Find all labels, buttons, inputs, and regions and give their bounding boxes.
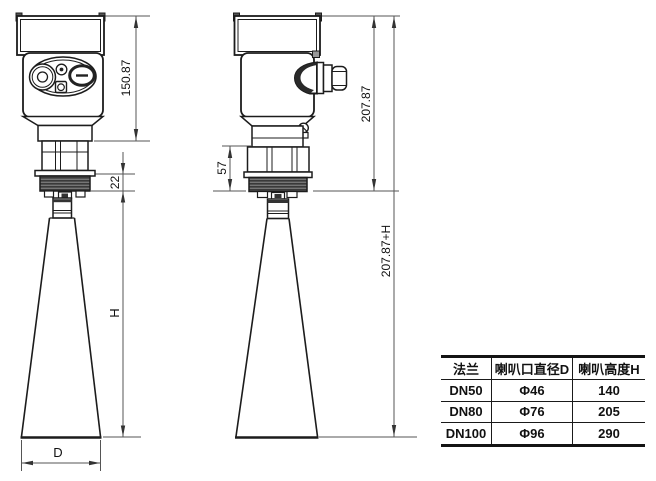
- dim-horn-diameter-label: D: [53, 445, 62, 460]
- spec-table-row: DN80 Φ76 205: [441, 402, 645, 424]
- spec-cell: 140: [573, 380, 645, 401]
- spec-header-horn-diameter: 喇叭口直径D: [492, 358, 573, 379]
- spec-cell: DN100: [441, 423, 492, 444]
- cable-gland: [317, 63, 324, 94]
- technical-drawing-page: 150.87 22 H D: [0, 0, 656, 481]
- spec-cell: Φ76: [492, 402, 573, 423]
- spec-table: 法兰 喇叭口直径D 喇叭高度H DN50 Φ46 140 DN80 Φ76 20…: [441, 355, 645, 447]
- dim-thread-height-label: 22: [108, 176, 122, 190]
- dim-neck-height-label: 57: [215, 161, 229, 175]
- spec-table-row: DN50 Φ46 140: [441, 380, 645, 402]
- spec-cell: DN80: [441, 402, 492, 423]
- side-view: 57 207.87 207.87+H: [213, 13, 417, 438]
- side-view-device: [234, 13, 347, 438]
- front-view: 150.87 22 H D: [16, 13, 150, 471]
- spec-table-header-row: 法兰 喇叭口直径D 喇叭高度H: [441, 358, 645, 380]
- dim-head-height-label: 150.87: [119, 59, 133, 96]
- dim-horn-height-label: H: [107, 308, 122, 317]
- spec-cell: Φ46: [492, 380, 573, 401]
- threaded-collar: [249, 178, 307, 192]
- dim-head-height-label: 207.87: [359, 85, 373, 122]
- spec-header-flange: 法兰: [441, 358, 492, 379]
- dim-total-height-label: 207.87+H: [379, 225, 393, 277]
- spec-cell: 205: [573, 402, 645, 423]
- spec-table-row: DN100 Φ96 290: [441, 423, 645, 444]
- spec-header-horn-height: 喇叭高度H: [573, 358, 645, 379]
- spec-cell: 290: [573, 423, 645, 444]
- threaded-collar: [40, 176, 90, 191]
- spec-cell: Φ96: [492, 423, 573, 444]
- hex-nut: [248, 147, 310, 172]
- front-view-device: [16, 13, 105, 438]
- process-connection: [42, 141, 88, 171]
- spec-cell: DN50: [441, 380, 492, 401]
